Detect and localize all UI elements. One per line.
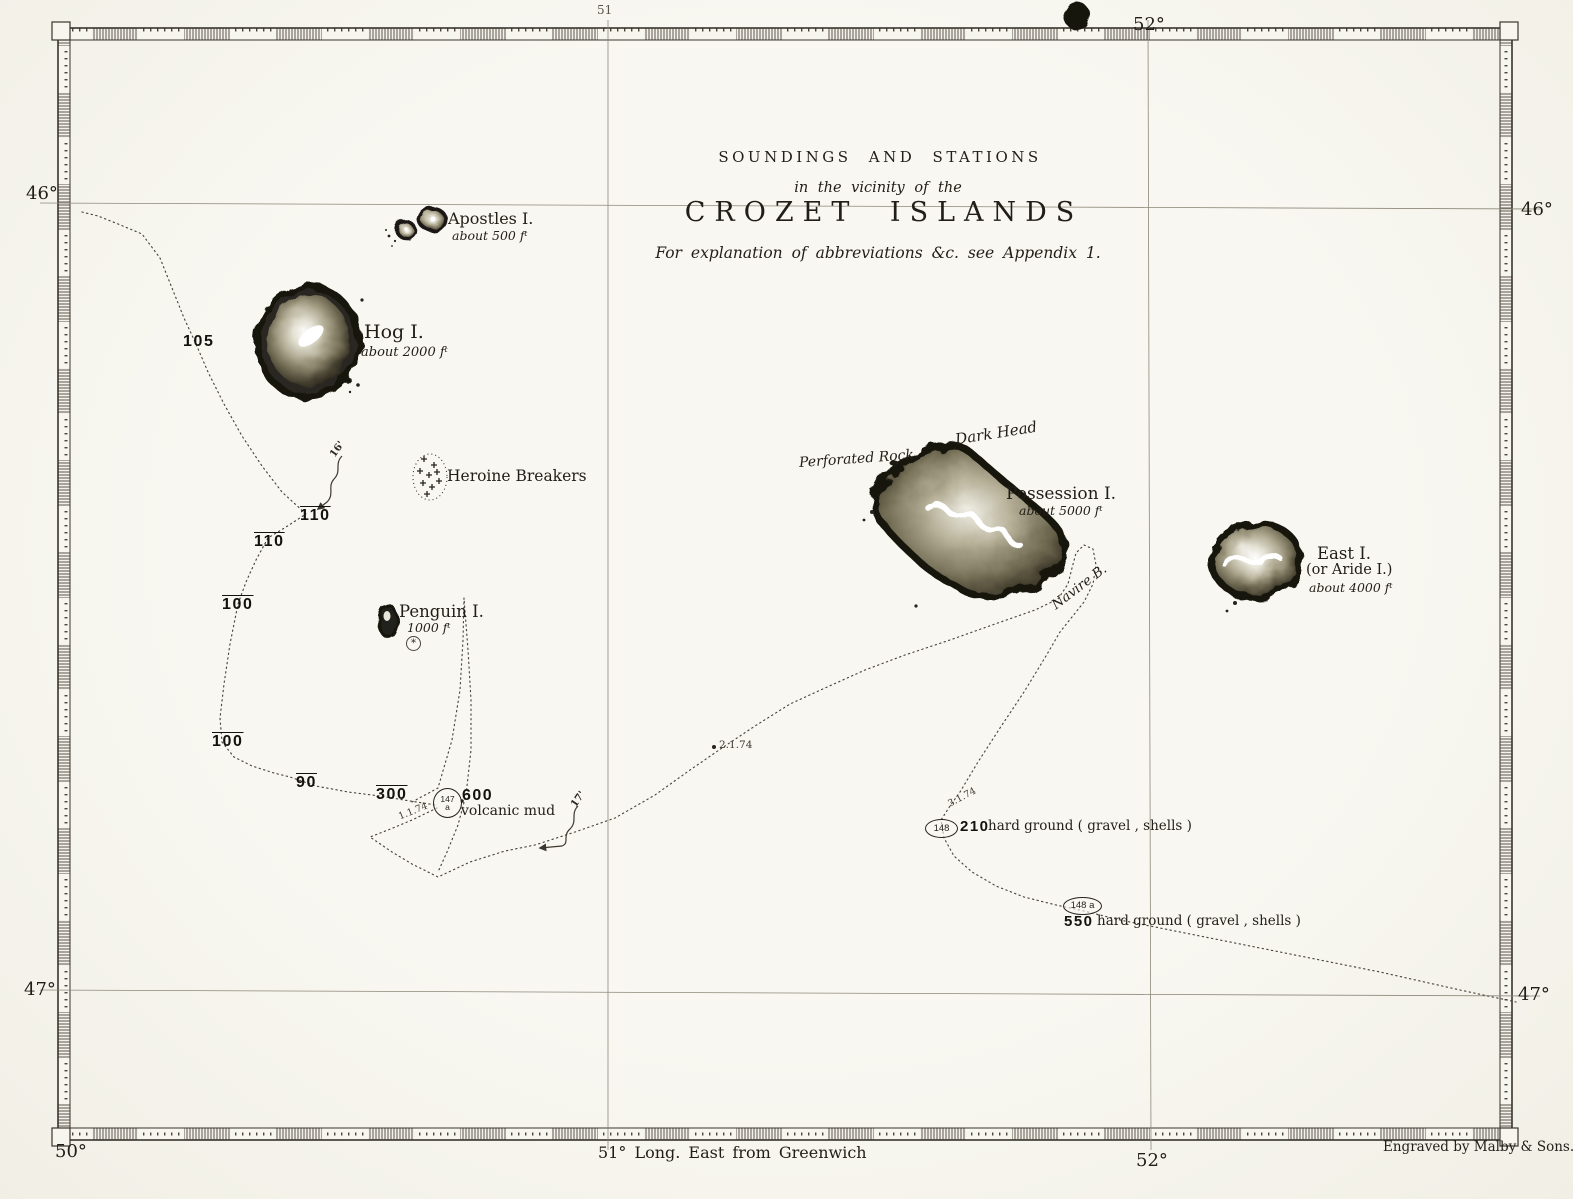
sounding-100-a: 100 [222,596,254,614]
heroine-breakers-label: Heroine Breakers [447,468,587,484]
east-island [1212,524,1302,612]
heroine-breakers-symbol [413,454,447,500]
east-island-elevation: about 4000 fᵗ [1309,581,1393,594]
sounding-110-a: 110 [300,507,331,525]
penguin-island [379,605,397,637]
possession-island-elevation: about 5000 fᵗ [1019,504,1103,517]
lat-label-right-47: 47° [1518,986,1550,1005]
possession-island-label: Possession I. [1006,486,1116,504]
lat-label-left-46: 46° [26,185,58,204]
station-148a-depth: 550 [1064,913,1094,930]
station-148a-id: 148 a [1071,901,1095,911]
possession-island [863,444,1065,608]
lon-label-bottom-52: 52° [1136,1152,1168,1171]
nautical-chart-page: SOUNDINGS AND STATIONS in the vicinity o… [0,0,1573,1199]
east-island-label: East I. [1317,545,1371,562]
engraver-credit: Engraved by Malby & Sons. [1383,1140,1573,1154]
chart-title-line1: SOUNDINGS AND STATIONS [718,150,1041,166]
hog-island-elevation: about 2000 fᵗ [361,346,448,360]
station-dot-2174 [712,745,716,749]
sounding-90: 90 [296,774,317,792]
penguin-island-label: Penguin I. [399,603,484,620]
penguin-island-elevation: 1000 fᵗ [407,621,451,634]
lon-label-bottom-51: 51° Long. East from Greenwich [598,1145,867,1162]
lat-label-left-47: 47° [24,981,56,1000]
observation-spot-glyph: * [411,638,416,649]
chart-border [52,22,1518,1146]
chart-title-line3: CROZET ISLANDS [685,199,1084,227]
lat-label-right-46: 46° [1521,201,1553,220]
station-148-id: 148 [934,824,950,834]
chart-title-line2: in the vicinity of the [794,181,962,196]
lon-label-bottom-50: 50° [55,1143,87,1162]
station-148-bottom: hard ground ( gravel , shells ) [988,819,1192,833]
hog-island [257,287,364,397]
track-date-2174: 2.1.74 [719,739,752,751]
hog-island-label: Hog I. [364,323,424,343]
chart-title-line4: For explanation of abbreviations &c. see… [655,245,1100,261]
station-148-marker: 148 [925,819,958,838]
scan-smudge [1064,2,1090,30]
station-147a-marker: 147 a [433,788,462,818]
station-147a-sub: a [445,803,450,812]
sounding-110-b: 110 [254,533,285,551]
sounding-300: 300 [376,786,408,804]
east-island-alt-name: (or Aride I.) [1306,563,1392,578]
observation-spot-symbol: * [406,636,421,651]
lon-label-top-51: 51 [597,4,612,17]
station-147a-bottom: volcanic mud [461,804,555,819]
apostles-island-label: Apostles I. [448,211,533,228]
station-148a-bottom: hard ground ( gravel , shells ) [1097,914,1301,928]
apostles-island [385,209,446,247]
lon-label-top-52: 52° [1133,16,1165,35]
apostles-island-elevation: about 500 fᵗ [452,229,528,242]
station-148-depth: 210 [960,818,990,835]
sounding-105: 105 [183,333,215,351]
sounding-100-b: 100 [212,733,244,751]
